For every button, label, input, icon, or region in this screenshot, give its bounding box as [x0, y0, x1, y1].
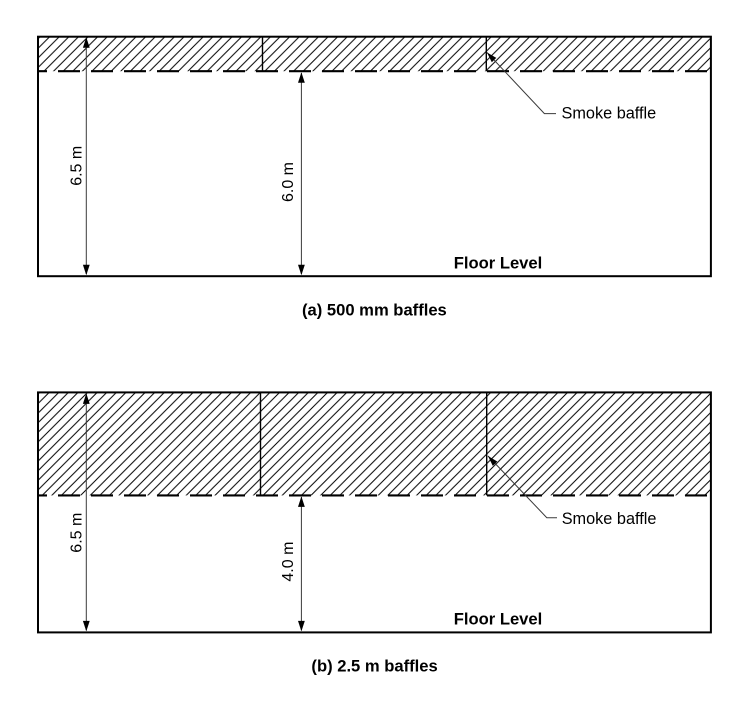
svg-text:Floor Level: Floor Level	[454, 609, 543, 628]
svg-text:6.5 m: 6.5 m	[68, 513, 85, 553]
svg-text:6.5 m: 6.5 m	[68, 146, 85, 186]
svg-text:(a) 500 mm baffles: (a) 500 mm baffles	[302, 301, 447, 320]
svg-text:Smoke baffle: Smoke baffle	[562, 510, 657, 528]
svg-text:Floor Level: Floor Level	[454, 253, 543, 272]
svg-text:4.0 m: 4.0 m	[280, 542, 297, 582]
svg-text:Smoke baffle: Smoke baffle	[562, 105, 657, 123]
svg-text:(b) 2.5 m baffles: (b) 2.5 m baffles	[311, 656, 437, 675]
svg-text:6.0 m: 6.0 m	[280, 162, 297, 202]
